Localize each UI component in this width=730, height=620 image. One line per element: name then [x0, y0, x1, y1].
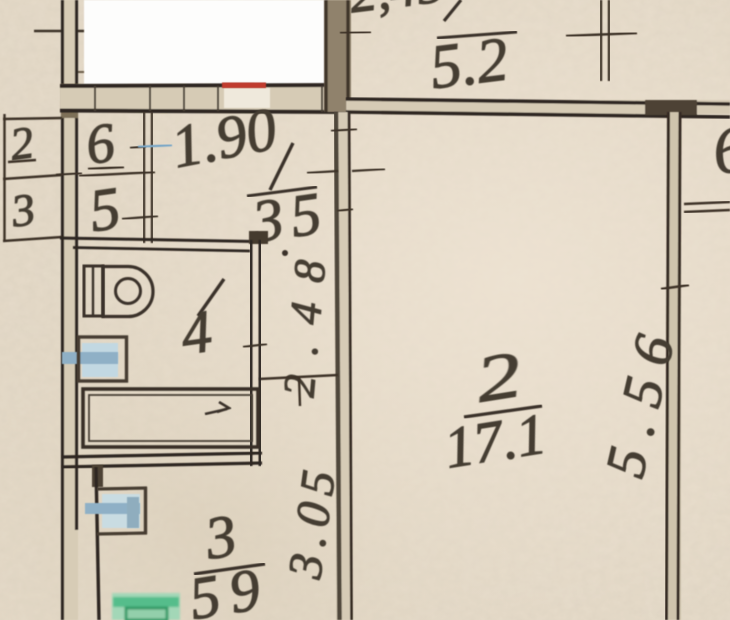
- svg-text:5.2: 5.2: [427, 25, 512, 102]
- svg-text:59: 59: [185, 555, 274, 620]
